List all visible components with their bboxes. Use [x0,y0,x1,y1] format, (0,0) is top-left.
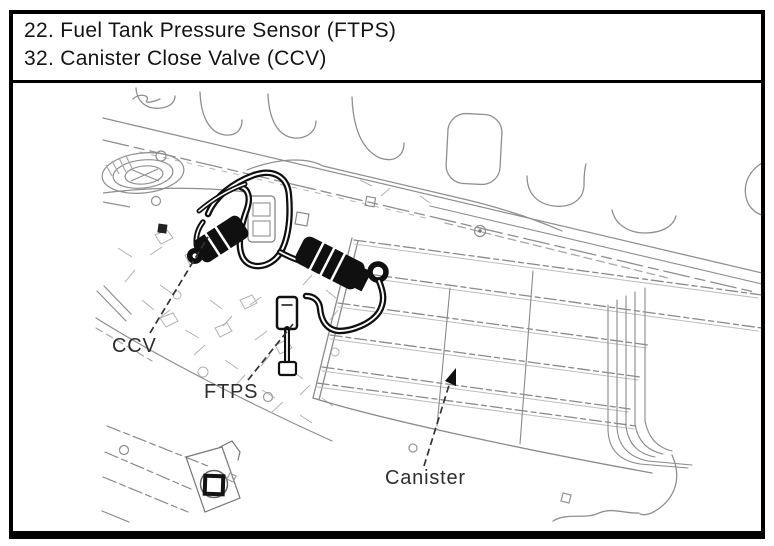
legend-line-ftps: 22. Fuel Tank Pressure Sensor (FTPS) [24,17,744,45]
spare-tire-well [100,149,247,207]
callout-ftps: FTPS [204,381,258,404]
legend-block: 22. Fuel Tank Pressure Sensor (FTPS) 32.… [24,17,744,73]
hose-z-run [306,281,383,331]
callout-ccv: CCV [112,335,157,358]
callout-canister: Canister [385,467,466,490]
crossmember-cylinder [102,426,240,522]
hose-connector-ring [370,264,386,280]
callout-leaders [150,237,450,466]
service-manual-figure: 22. Fuel Tank Pressure Sensor (FTPS) 32.… [0,0,774,546]
hose-strand [199,184,245,211]
canister-cover-panel [313,238,761,473]
hose-fitting [277,297,297,329]
bolt-square [157,223,167,233]
evap-hose-assembly [181,173,386,375]
heat-shield-outline [96,160,562,441]
pipe-end-connector [279,362,296,375]
underbody-diagram [13,83,761,531]
canister-arrowhead [445,368,456,386]
ftps-sensor [293,234,373,295]
legend-line-ccv: 32. Canister Close Valve (CCV) [24,45,744,73]
mounting-bracket [248,196,309,242]
underbody-contour-lines [103,88,761,292]
